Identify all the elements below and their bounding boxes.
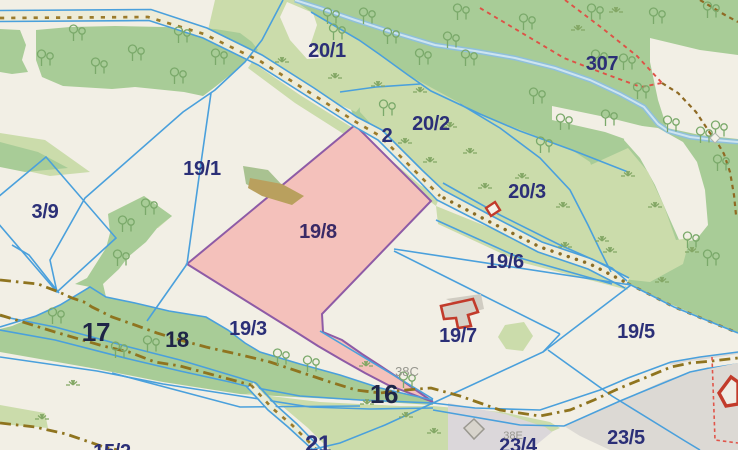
svg-text:38E: 38E bbox=[503, 430, 523, 442]
svg-text:307: 307 bbox=[586, 53, 619, 75]
svg-text:19/8: 19/8 bbox=[299, 221, 337, 243]
svg-text:19/7: 19/7 bbox=[439, 325, 477, 347]
svg-text:2: 2 bbox=[382, 125, 393, 147]
svg-text:20/1: 20/1 bbox=[308, 40, 346, 62]
svg-text:20/3: 20/3 bbox=[508, 181, 546, 203]
svg-text:17: 17 bbox=[82, 317, 110, 347]
svg-text:19/6: 19/6 bbox=[486, 251, 524, 273]
svg-text:23/5: 23/5 bbox=[607, 427, 645, 449]
svg-text:18: 18 bbox=[165, 327, 189, 352]
svg-text:38C: 38C bbox=[395, 364, 419, 379]
svg-text:19/3: 19/3 bbox=[229, 318, 267, 340]
svg-text:15/2: 15/2 bbox=[93, 441, 131, 450]
svg-text:19/5: 19/5 bbox=[617, 321, 655, 343]
svg-text:21: 21 bbox=[305, 431, 331, 450]
svg-text:19/1: 19/1 bbox=[183, 158, 221, 180]
svg-text:3/9: 3/9 bbox=[32, 201, 59, 223]
svg-text:20/2: 20/2 bbox=[412, 113, 450, 135]
svg-text:16: 16 bbox=[370, 379, 398, 409]
